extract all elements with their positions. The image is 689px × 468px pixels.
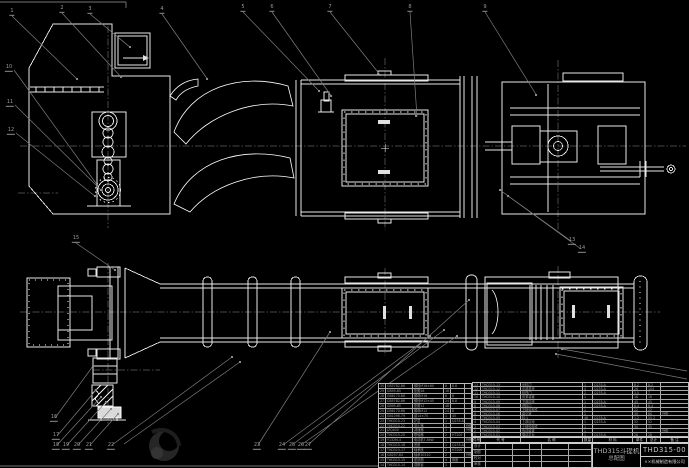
bom-cell: 28 — [633, 433, 647, 436]
balloon-callout: 23 — [253, 443, 261, 450]
bom-table-main-parts: 13THD315-13出料口1Q235-A8.28.212THD315-12中部… — [472, 382, 689, 437]
balloon-callout: 25 — [288, 443, 296, 450]
signature-cell — [542, 462, 569, 467]
bom-cell: 备 注 — [661, 438, 688, 442]
takeup-screw — [600, 161, 664, 177]
balloon-callout: 13 — [568, 238, 576, 245]
balloon-callout: 14 — [578, 246, 586, 253]
bom-cell: 观察窗 — [413, 463, 444, 467]
tail-end-plate — [634, 276, 647, 350]
platform-ladder — [30, 87, 104, 92]
drawing-name: THD315斗提机 — [593, 448, 640, 456]
tail-cover-plate — [560, 287, 623, 338]
bom-cell: 驱动平台 — [521, 433, 583, 436]
door-handle — [378, 120, 390, 124]
drawing-name-cell: THD315斗提机 总配图 — [593, 444, 641, 467]
balloon-callout: 16 — [50, 415, 58, 422]
balloon-callout: 11 — [6, 100, 14, 107]
signature-cell: 审核 — [473, 462, 486, 467]
balloon-callout: 17 — [52, 433, 60, 440]
bom-cell: 名 称 — [521, 438, 583, 442]
bom-row: 14THD315-14观察窗1 — [379, 462, 471, 467]
balloon-callout: 1 — [9, 9, 14, 16]
head-top-box — [115, 33, 150, 68]
drawing-subtitle: 总配图 — [593, 456, 640, 463]
balloon-callout: 22 — [107, 443, 115, 450]
balloon-callout: 7 — [327, 5, 332, 12]
bom-table-standard-parts: 30GB5782-86螺栓M16×6088.829GB95-85垫圈161628… — [378, 383, 472, 468]
bucket-lower — [174, 154, 294, 212]
bucket-upper — [174, 81, 293, 144]
balloon-callout: 24 — [278, 443, 286, 450]
leader-lines — [12, 12, 687, 445]
signature-cell — [513, 462, 530, 467]
tail-casing — [502, 82, 645, 214]
drawing-number: THD315-00 — [641, 444, 688, 457]
company-name: ××机械制造有限公司 — [641, 457, 688, 467]
cad-drawing-sheet: 1234567891011121314151617181920212223242… — [0, 0, 689, 468]
balloon-callout: 15 — [72, 236, 80, 243]
balloon-callout: 20 — [73, 443, 81, 450]
balloon-callout: 27 — [304, 443, 312, 450]
bom-cell: 1 — [473, 433, 481, 436]
balloon-callout: 4 — [159, 7, 164, 14]
bom-row: 1THD315-01驱动平台1Q235-A2828 — [473, 432, 688, 436]
balloon-callout: 19 — [62, 443, 70, 450]
balloon-callout: 12 — [7, 128, 15, 135]
logo-swirl — [149, 430, 179, 461]
elevation-view-lines — [29, 24, 675, 223]
bom-cell — [465, 463, 471, 467]
bom-cell: THD315-01 — [481, 433, 521, 436]
balloon-callout: 9 — [482, 5, 487, 12]
bom-cell: 14 — [379, 463, 386, 467]
bucket-curves — [170, 79, 294, 212]
coupling-box — [92, 385, 113, 406]
bom-cell: 数量 — [583, 438, 593, 442]
signature-cell — [569, 462, 592, 467]
transition-chute — [125, 268, 160, 358]
leader-endpoints — [76, 46, 563, 415]
signature-cell — [530, 462, 543, 467]
signature-cell — [486, 462, 513, 467]
bom-cell: THD315-14 — [386, 463, 413, 467]
signature-row: 审核 — [473, 461, 592, 467]
drawing-code-cell: THD315-00 ××机械制造有限公司 — [641, 444, 688, 467]
drive-shaft-box — [93, 358, 117, 383]
bom-cell: 代 号 — [481, 438, 521, 442]
balloon-callout: 5 — [240, 5, 245, 12]
bom-cell: 材 料 — [593, 438, 633, 442]
title-block: 设计制图校对审核 THD315斗提机 总配图 THD315-00 ××机械制造有… — [472, 443, 689, 468]
bom-cell: 总计 — [647, 438, 661, 442]
bom-cell: 28 — [647, 433, 661, 436]
sprocket-housing — [92, 112, 126, 157]
motor — [98, 407, 121, 418]
head-end-plate — [27, 278, 70, 347]
bom-row: 件号代 号名 称数量材 料单件总计备 注 — [473, 438, 688, 442]
balloon-callout: 10 — [5, 65, 13, 72]
bom-cell — [451, 463, 465, 467]
bom-cell: 1 — [583, 433, 593, 436]
casing-flange-ring — [466, 275, 477, 350]
balloon-callout: 21 — [85, 443, 93, 450]
bom-cell: 单件 — [633, 438, 647, 442]
balloon-callout: 6 — [269, 5, 274, 12]
signature-grid: 设计制图校对审核 — [473, 444, 593, 467]
balloon-callout: 8 — [407, 5, 412, 12]
bom-cell: Q235-A — [593, 433, 633, 436]
door-handle — [378, 170, 390, 174]
balloon-callout: 3 — [87, 7, 92, 14]
bom-cell: 件号 — [473, 438, 481, 442]
centerlines — [18, 26, 686, 426]
bom-cell — [661, 433, 688, 436]
balloon-callout: 2 — [59, 6, 64, 13]
sheet-border — [0, 2, 378, 466]
balloon-callout: 18 — [52, 443, 60, 450]
bom-cell: 1 — [444, 463, 451, 467]
